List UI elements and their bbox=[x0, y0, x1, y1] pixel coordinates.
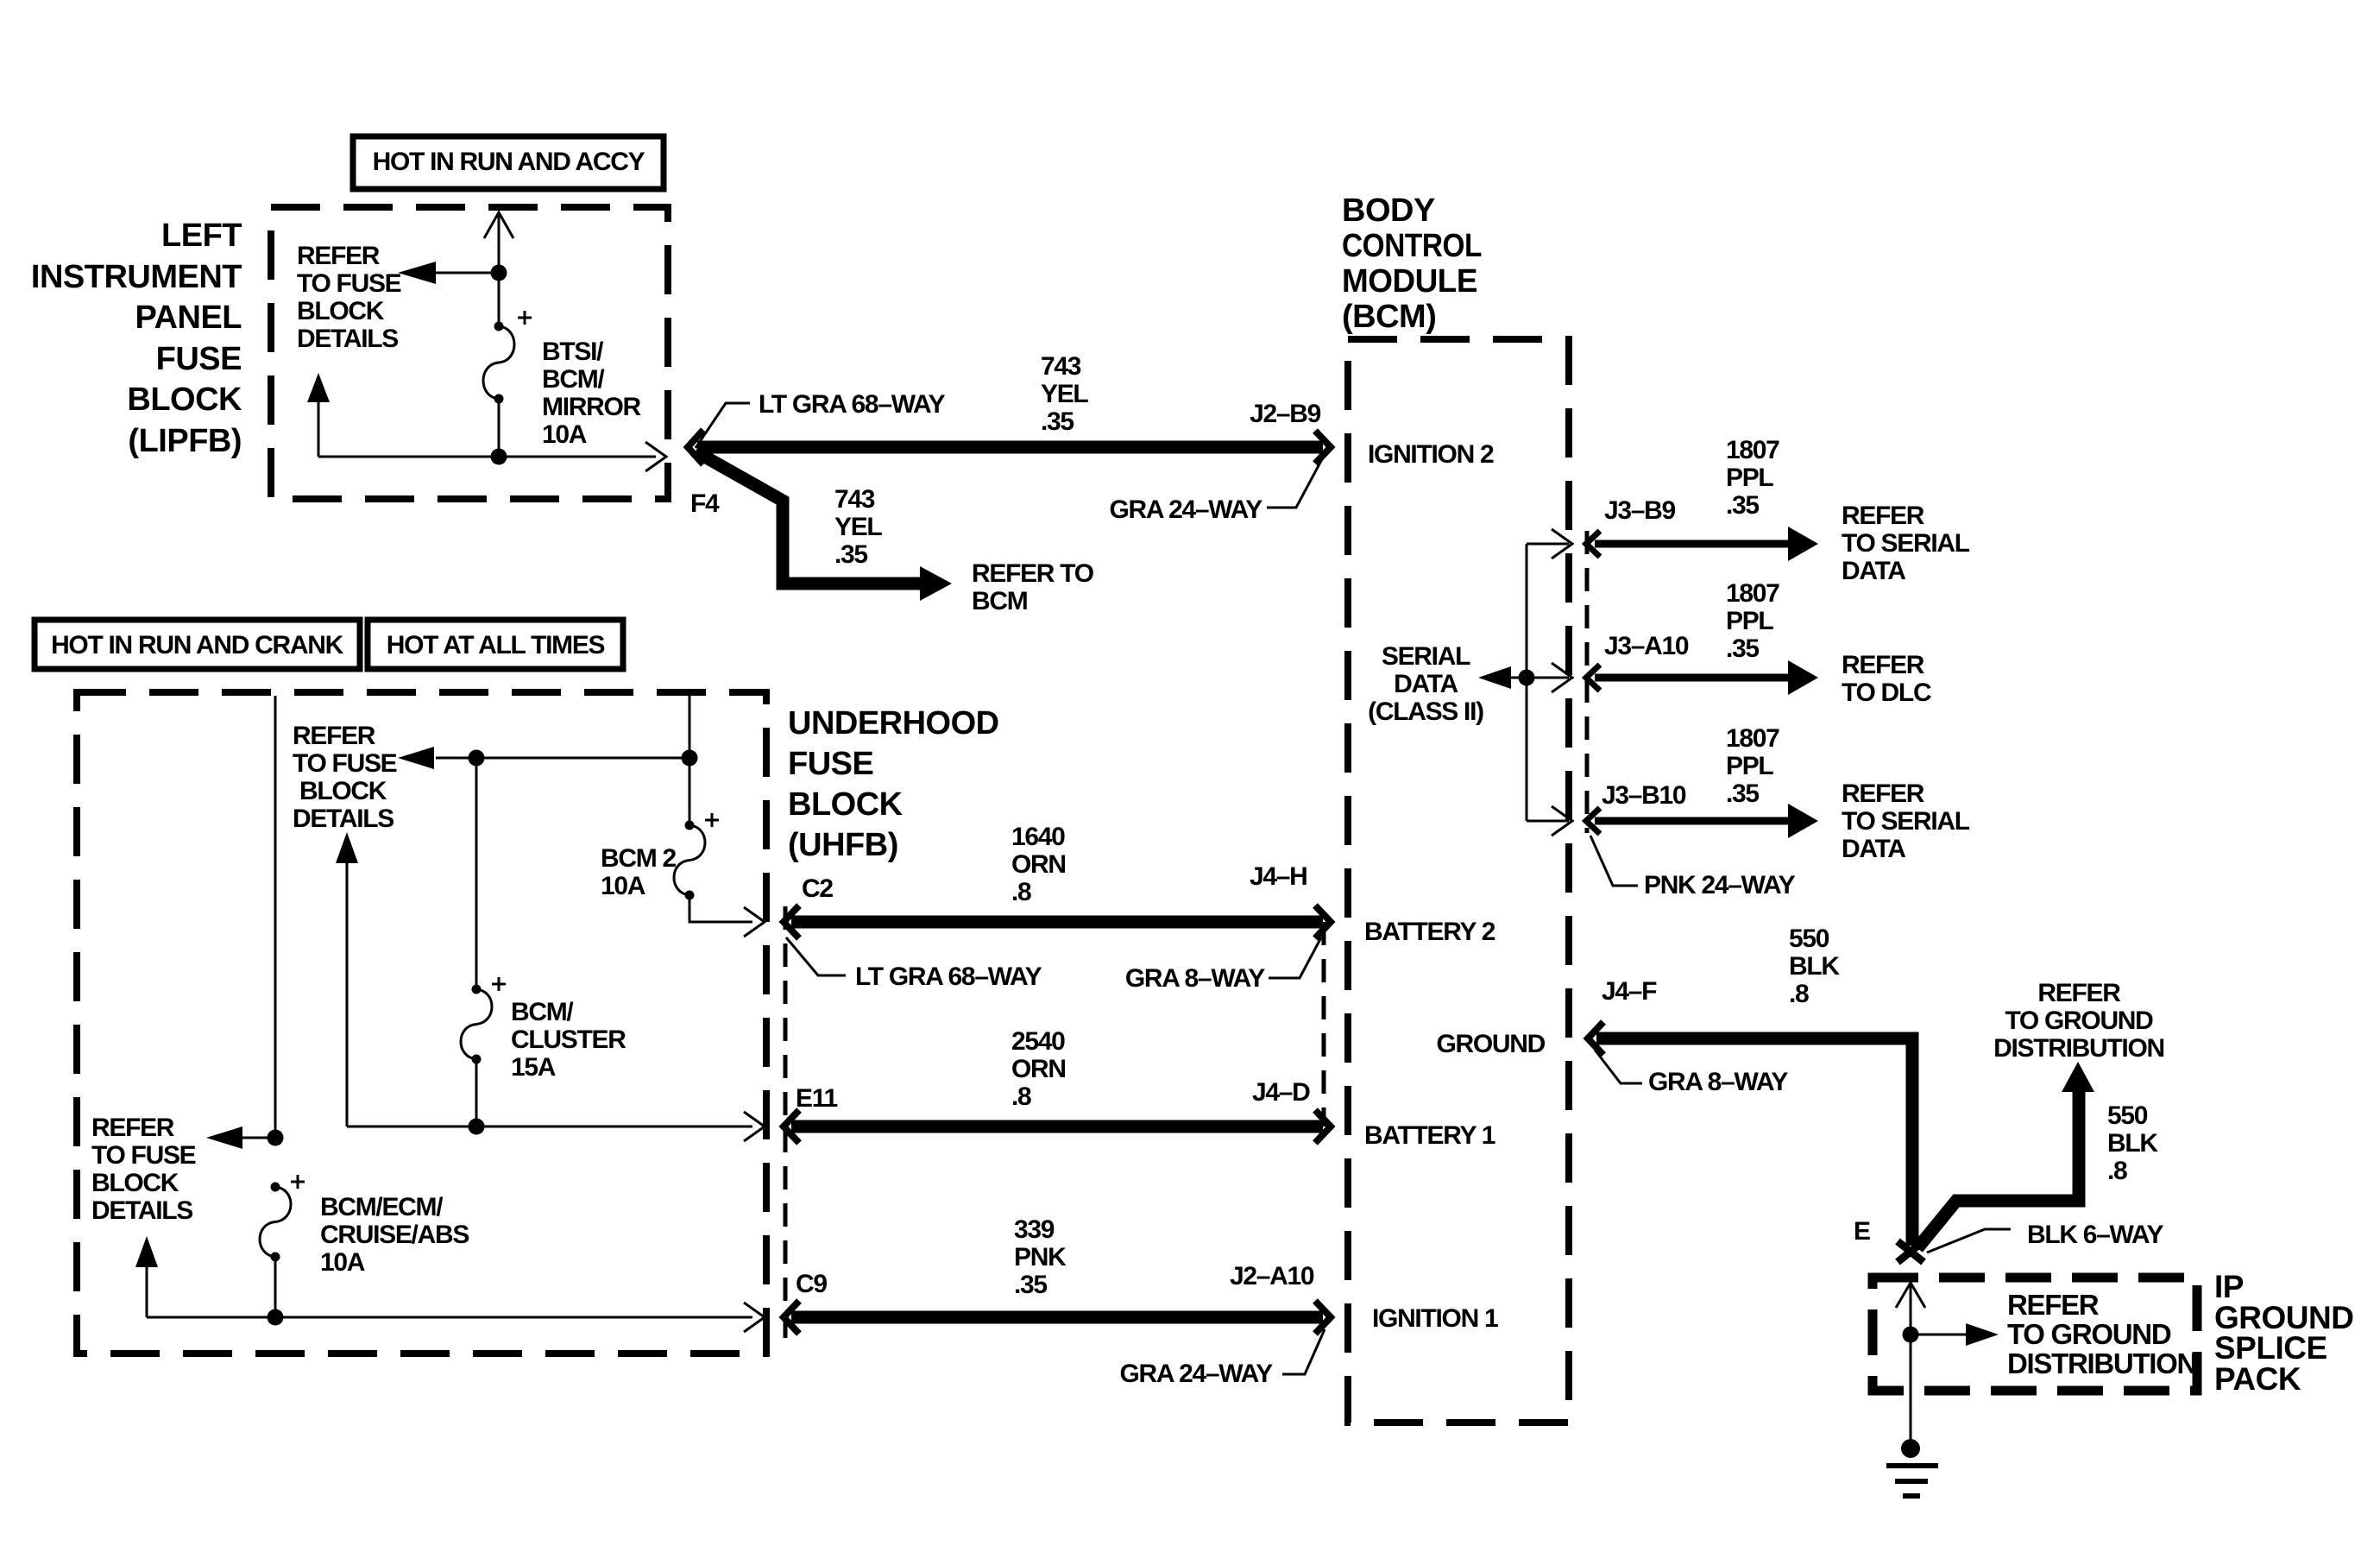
svg-text:J4–F: J4–F bbox=[1602, 977, 1657, 1006]
svg-text:J3–A10: J3–A10 bbox=[1604, 632, 1689, 660]
svg-text:C2: C2 bbox=[802, 874, 833, 903]
svg-text:J2–B9: J2–B9 bbox=[1250, 400, 1321, 428]
svg-text:J4–D: J4–D bbox=[1252, 1078, 1310, 1107]
svg-text:HOT IN RUN AND CRANK: HOT IN RUN AND CRANK bbox=[51, 631, 344, 659]
svg-text:GRA 8–WAY: GRA 8–WAY bbox=[1125, 964, 1265, 993]
svg-text:BATTERY 2: BATTERY 2 bbox=[1364, 918, 1495, 946]
svg-text:BLK 6–WAY: BLK 6–WAY bbox=[2027, 1221, 2164, 1249]
svg-text:C9: C9 bbox=[796, 1270, 827, 1298]
svg-text:HOT IN RUN AND ACCY: HOT IN RUN AND ACCY bbox=[373, 148, 645, 176]
svg-text:IGNITION 2: IGNITION 2 bbox=[1368, 440, 1494, 469]
svg-text:GRA 8–WAY: GRA 8–WAY bbox=[1648, 1068, 1788, 1096]
svg-text:PNK 24–WAY: PNK 24–WAY bbox=[1644, 871, 1796, 899]
svg-text:HOT AT ALL TIMES: HOT AT ALL TIMES bbox=[387, 631, 605, 659]
svg-text:LT GRA 68–WAY: LT GRA 68–WAY bbox=[759, 390, 946, 419]
svg-text:J3–B10: J3–B10 bbox=[1602, 781, 1686, 810]
svg-text:GROUND: GROUND bbox=[1436, 1030, 1545, 1058]
svg-text:BATTERY 1: BATTERY 1 bbox=[1364, 1121, 1495, 1150]
svg-text:J3–B9: J3–B9 bbox=[1604, 496, 1676, 525]
svg-text:J2–A10: J2–A10 bbox=[1230, 1262, 1314, 1290]
svg-text:E11: E11 bbox=[796, 1084, 837, 1113]
svg-text:E: E bbox=[1854, 1217, 1870, 1246]
svg-text:IGNITION 1: IGNITION 1 bbox=[1372, 1304, 1498, 1333]
svg-text:GRA 24–WAY: GRA 24–WAY bbox=[1119, 1360, 1273, 1388]
svg-text:GRA 24–WAY: GRA 24–WAY bbox=[1109, 495, 1262, 524]
svg-text:REFERTO DLC: REFERTO DLC bbox=[1842, 651, 1931, 707]
svg-text:LT GRA 68–WAY: LT GRA 68–WAY bbox=[855, 962, 1042, 991]
svg-text:F4: F4 bbox=[690, 489, 720, 518]
svg-text:J4–H: J4–H bbox=[1250, 862, 1307, 891]
